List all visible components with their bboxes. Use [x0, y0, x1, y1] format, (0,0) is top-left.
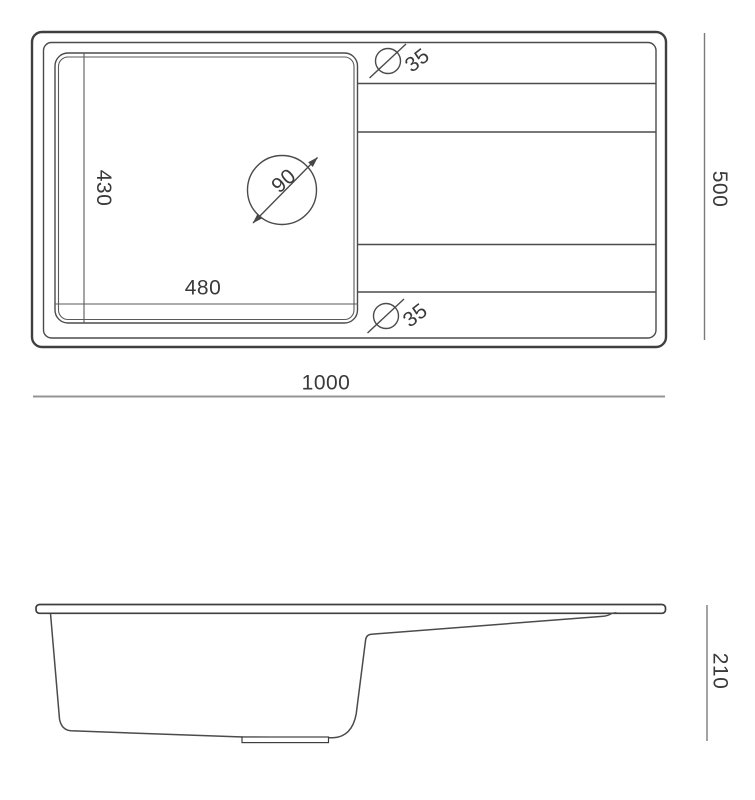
top-view: 90 35 35 430 480 500 1000	[32, 32, 731, 397]
drain-hole-bottom: 35	[368, 299, 433, 333]
sink-profile	[51, 613, 617, 738]
drain-outlet	[242, 737, 329, 743]
bowl-depth-label: 430	[92, 170, 115, 207]
bowl-width-label: 480	[185, 277, 222, 300]
drain-top-diameter-label: 35	[401, 44, 434, 77]
width-label: 500	[708, 171, 731, 208]
drain-hole-top: 35	[370, 44, 435, 78]
side-view: 210	[36, 605, 732, 743]
faucet-diameter-label: 90	[267, 164, 300, 197]
sink-technical-drawing: 90 35 35 430 480 500 1000	[0, 0, 755, 800]
outer-edge-rect	[32, 32, 666, 347]
length-label: 1000	[302, 372, 351, 395]
height-label: 210	[709, 653, 732, 690]
countertop-rim	[36, 605, 666, 614]
rim-inner-rect	[44, 43, 657, 339]
drain-bottom-diameter-label: 35	[399, 299, 432, 332]
